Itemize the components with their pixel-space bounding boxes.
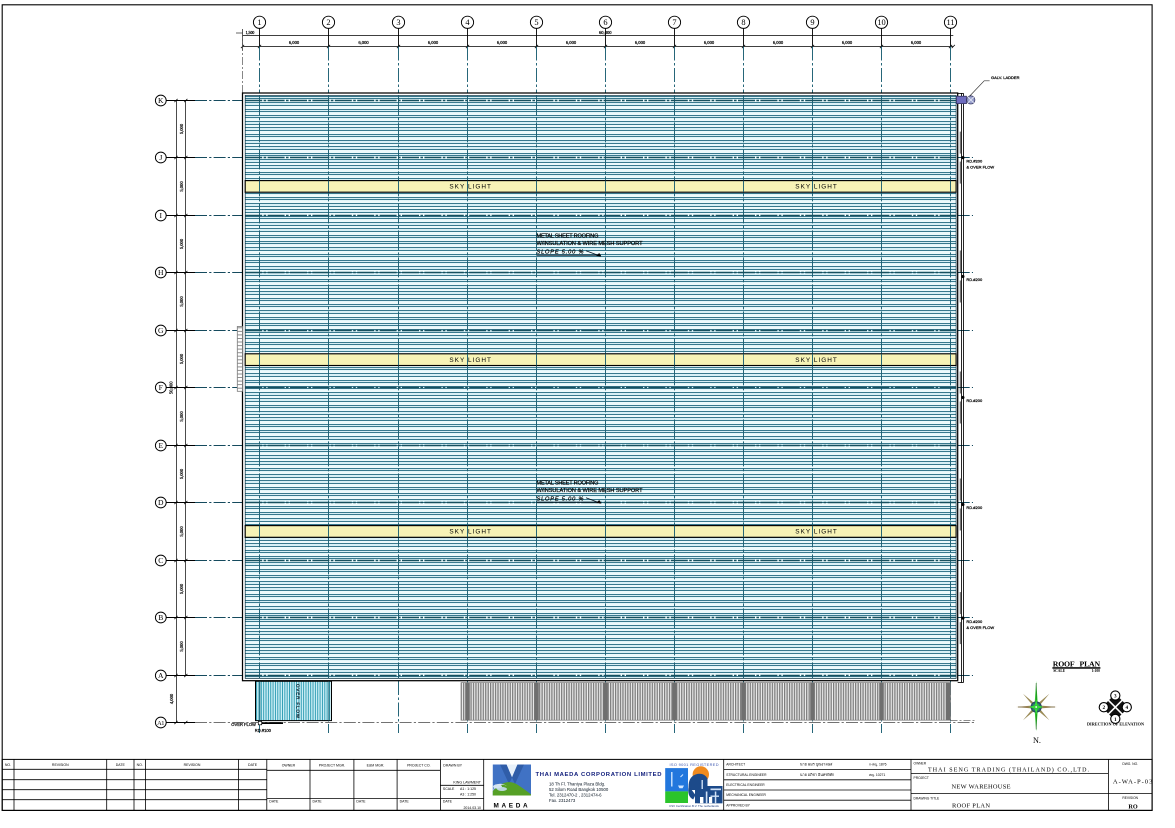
svg-text:PROJECT CO.: PROJECT CO. xyxy=(407,763,430,767)
svg-text:SCALE: SCALE xyxy=(443,787,455,791)
svg-text:K: K xyxy=(158,96,164,105)
svg-text:18 Th Fl. Thaniya Plaza Bldg.: 18 Th Fl. Thaniya Plaza Bldg. xyxy=(549,781,605,786)
svg-text:OVER FLOW: OVER FLOW xyxy=(296,684,301,719)
svg-text:RD.#200: RD.#200 xyxy=(966,398,983,403)
svg-text:5: 5 xyxy=(534,18,538,27)
svg-text:ROOF PLAN: ROOF PLAN xyxy=(1053,659,1101,668)
svg-text:STRUCTURAL ENGINEER: STRUCTURAL ENGINEER xyxy=(726,773,767,777)
svg-text:OWNER: OWNER xyxy=(914,762,927,766)
svg-text:CSV Certification B.V. The net: CSV Certification B.V. The netherlands xyxy=(669,804,719,808)
svg-text:H: H xyxy=(158,268,164,277)
svg-text:3: 3 xyxy=(1114,693,1117,699)
svg-text:8: 8 xyxy=(741,18,745,27)
svg-text:GALV. LADDER: GALV. LADDER xyxy=(991,75,1020,80)
svg-text:4: 4 xyxy=(1126,705,1129,711)
svg-text:NO.: NO. xyxy=(5,763,11,767)
svg-text:RD.#200: RD.#200 xyxy=(966,158,983,163)
svg-text:SKY LIGHT: SKY LIGHT xyxy=(795,184,838,191)
svg-text:DATE: DATE xyxy=(400,800,410,804)
svg-text:DATE: DATE xyxy=(248,763,258,767)
svg-text:11: 11 xyxy=(946,18,954,27)
svg-text:METAL SHEET ROOFING: METAL SHEET ROOFING xyxy=(537,233,599,239)
svg-text:KING LAWMENT: KING LAWMENT xyxy=(453,781,481,785)
svg-text:SKY LIGHT: SKY LIGHT xyxy=(449,529,492,536)
svg-text:C: C xyxy=(158,556,163,565)
svg-text:E: E xyxy=(158,441,163,450)
svg-text:SKY LIGHT: SKY LIGHT xyxy=(449,357,492,364)
svg-text:DATE: DATE xyxy=(269,800,279,804)
svg-text:D: D xyxy=(158,498,164,507)
svg-text:A: A xyxy=(158,671,164,680)
svg-text:RD.#200: RD.#200 xyxy=(966,619,983,624)
svg-text:REVISION: REVISION xyxy=(184,763,201,767)
svg-text:SKY LIGHT: SKY LIGHT xyxy=(795,529,838,536)
svg-text:Tel. 2312470-2 , 2312474-6: Tel. 2312470-2 , 2312474-6 xyxy=(549,792,602,797)
svg-text:9: 9 xyxy=(810,18,814,27)
svg-text:RO: RO xyxy=(1128,804,1137,811)
svg-text:E&M MGR.: E&M MGR. xyxy=(367,763,385,767)
svg-text:G: G xyxy=(158,326,164,335)
svg-text:OWNER: OWNER xyxy=(282,763,296,767)
svg-text:OVER FLOW: OVER FLOW xyxy=(231,722,256,727)
svg-text:W/INSULATION & WIRE MESH SUPPO: W/INSULATION & WIRE MESH SUPPORT xyxy=(537,488,644,494)
svg-text:REVISION: REVISION xyxy=(52,763,69,767)
svg-text:DATE: DATE xyxy=(443,800,453,804)
svg-text:SCALE: SCALE xyxy=(1053,669,1066,673)
svg-text:นาย ฉมร บูณงาลนส: นาย ฉมร บูณงาลนส xyxy=(800,762,833,767)
svg-text:Fax. 2312473: Fax. 2312473 xyxy=(549,798,576,803)
svg-text:SKY LIGHT: SKY LIGHT xyxy=(795,357,838,364)
svg-text:B: B xyxy=(158,613,163,622)
svg-text:SLOPE 5.00 %: SLOPE 5.00 % xyxy=(537,497,584,503)
svg-text:DWG. NO.: DWG. NO. xyxy=(1122,762,1138,766)
svg-text:ISO 9001 REGISTERED: ISO 9001 REGISTERED xyxy=(670,762,719,767)
svg-text:ELECTRICAL ENGINEER: ELECTRICAL ENGINEER xyxy=(726,783,765,787)
svg-text:PROJECT: PROJECT xyxy=(914,776,929,780)
svg-text:SKY LIGHT: SKY LIGHT xyxy=(449,184,492,191)
svg-text:PROJECT MGR.: PROJECT MGR. xyxy=(319,763,345,767)
svg-text:SLOPE 5.00 %: SLOPE 5.00 % xyxy=(537,250,584,256)
svg-text:10: 10 xyxy=(877,18,885,27)
svg-text:3: 3 xyxy=(396,18,400,27)
svg-text:NO.: NO. xyxy=(137,763,143,767)
svg-text:A1 : 1:125: A1 : 1:125 xyxy=(460,787,476,791)
svg-text:A3 : 1:250: A3 : 1:250 xyxy=(460,792,476,796)
svg-text:2: 2 xyxy=(326,18,330,27)
svg-text:DATE: DATE xyxy=(356,800,366,804)
svg-text:MAEDA: MAEDA xyxy=(494,802,532,809)
svg-text:1: 1 xyxy=(257,18,261,27)
svg-text:2014.03.10: 2014.03.10 xyxy=(463,806,481,810)
svg-text:A-WA-P-03: A-WA-P-03 xyxy=(1113,778,1153,785)
svg-text:DATE: DATE xyxy=(313,800,323,804)
svg-text:ROOF PLAN: ROOF PLAN xyxy=(952,803,990,810)
svg-text:ARCHITECT: ARCHITECT xyxy=(726,763,745,767)
svg-text:7: 7 xyxy=(672,18,676,27)
svg-text:DRAWING TITLE: DRAWING TITLE xyxy=(914,796,940,800)
svg-text:A1: A1 xyxy=(157,720,164,727)
svg-text:DRAWN BY: DRAWN BY xyxy=(443,763,462,767)
svg-text:6: 6 xyxy=(603,18,607,27)
svg-text:1:100: 1:100 xyxy=(1092,669,1101,673)
svg-text:นาย อภิชา อินทรพิทัก: นาย อภิชา อินทรพิทัก xyxy=(800,772,834,777)
svg-text:NEW WAREHOUSE: NEW WAREHOUSE xyxy=(952,784,1011,791)
svg-text:& OVER FLOW: & OVER FLOW xyxy=(966,625,994,630)
svg-text:RD.#200: RD.#200 xyxy=(966,277,983,282)
svg-text:DATE: DATE xyxy=(116,763,126,767)
svg-text:MECHANICAL ENGINEER: MECHANICAL ENGINEER xyxy=(726,793,766,797)
svg-text:J: J xyxy=(159,153,162,162)
svg-text:THAI MAEDA CORPORATION LIMITED: THAI MAEDA CORPORATION LIMITED xyxy=(536,772,662,778)
svg-text:F: F xyxy=(159,383,163,392)
svg-text:METAL SHEET ROOFING: METAL SHEET ROOFING xyxy=(537,480,599,486)
svg-text:THAI SENG TRADING (THAILAND) C: THAI SENG TRADING (THAILAND) CO.,LTD. xyxy=(928,766,1090,773)
svg-text:52 Silom Road Bangkok 10500: 52 Silom Road Bangkok 10500 xyxy=(549,787,609,792)
svg-text:DIRECTION OF ELEVATION: DIRECTION OF ELEVATION xyxy=(1087,721,1144,726)
svg-text:2: 2 xyxy=(1103,705,1106,711)
svg-text:REVISION: REVISION xyxy=(1122,796,1138,800)
svg-text:W/INSULATION & WIRE MESH SUPPO: W/INSULATION & WIRE MESH SUPPORT xyxy=(537,241,644,247)
svg-text:N.: N. xyxy=(1033,736,1041,745)
svg-text:ก-สญ. 1876: ก-สญ. 1876 xyxy=(869,763,887,767)
svg-text:RD.#100: RD.#100 xyxy=(255,728,272,733)
svg-text:RD.#200: RD.#200 xyxy=(966,505,983,510)
svg-text:APPROVED BY: APPROVED BY xyxy=(726,803,750,807)
svg-text:สญ. 10271: สญ. 10271 xyxy=(869,773,885,777)
svg-text:& OVER FLOW: & OVER FLOW xyxy=(966,164,994,169)
